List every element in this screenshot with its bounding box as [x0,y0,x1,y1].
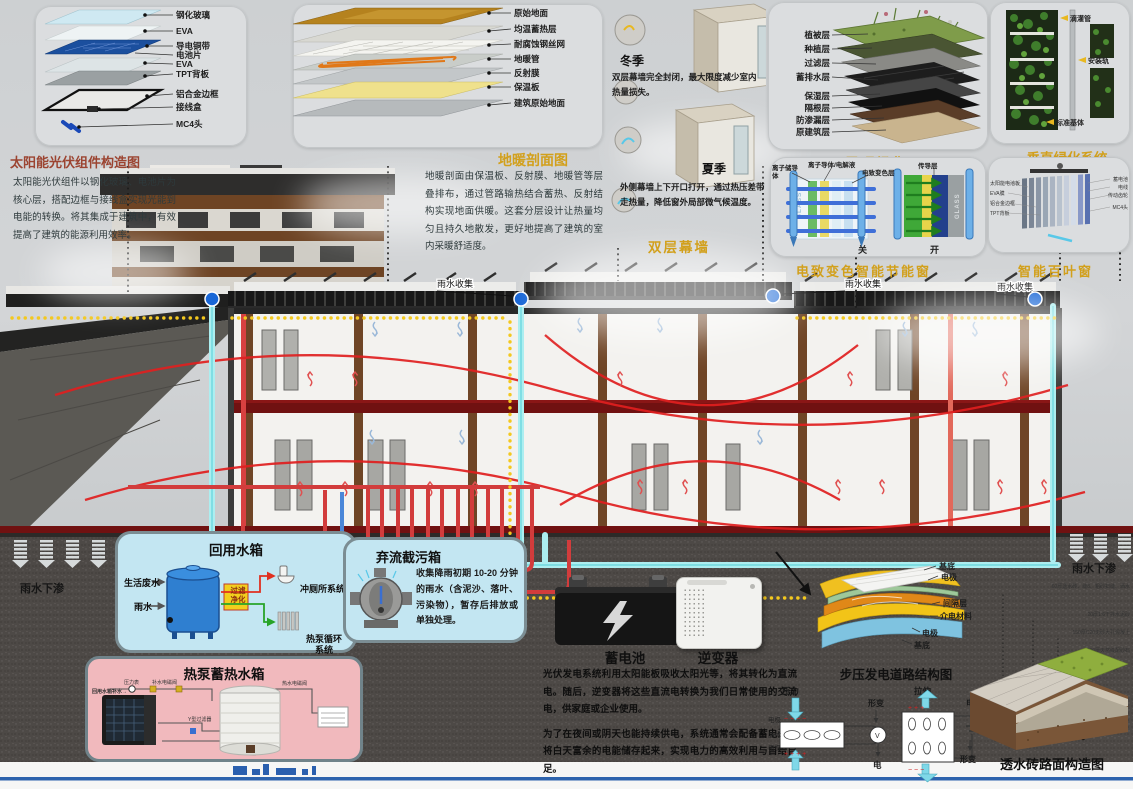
heating-layer-label: 反射膜 [514,68,540,78]
heatpump-label: 补水电磁阀 [152,679,177,686]
piezo-layer-label: 电极 [922,628,938,638]
pv-layer-label: 钢化玻璃 [176,10,211,20]
svg-text:+ + +: + + + [908,705,924,712]
pv-layer-label: TPT背板 [176,69,210,79]
smart-blinds-panel: 太阳能电池板 EVA膜 铝合金边框 TPT背板 蓄电池 电线 传动齿轮 MC4头 [988,157,1130,253]
rain-collect-label-left: 雨水收集 [437,278,473,289]
piezo-layer-label: 电极 [941,572,957,582]
diversion-desc: 收集降雨初期 10-20 分钟的雨水（含泥沙、落叶、污染物），暂存后排放或单独处… [416,566,518,629]
red-riser-pipe-right [948,314,953,526]
glass-label: GLASS [955,193,961,219]
crystal-label: 晶体 [768,730,782,739]
blinds-title: 智能百叶窗 [1018,261,1093,280]
red-riser-pipe-left [241,314,246,526]
reuse-input-1: 生活废水 [124,576,160,589]
svg-text:V: V [875,733,880,740]
winter-text: 双层幕墙完全封闭，最大限度减少室内热量损失。 [612,70,762,101]
roof-layer-label: 植被层 [803,30,830,40]
blinds-label: 太阳能电池板 [990,180,1020,187]
permeable-layer-label: 150厚C20无砂大孔混凝土 [1072,629,1130,636]
pv-layer-label: EVA [176,26,193,36]
roof-layer-label: 过滤层 [804,58,830,68]
permeable-title: 透水砖路面构造图 [1000,754,1133,773]
piezo-layer-label: 基底 [938,561,955,571]
infiltration-label-left: 雨水下渗 [20,581,65,595]
blinds-label: 传动齿轮 [1108,192,1128,199]
vgreen-label: 安装轨 [1088,56,1109,65]
vertical-greening-diagram: 滴灌管 安装轨 标准基体 [990,2,1130,144]
heatpump-label: 压力表 [124,679,139,686]
rain-collect-label-right: 雨水收集 [997,281,1033,292]
curtain-wall-illustrations [608,0,766,258]
roof-layer-label: 原建筑层 [796,127,831,137]
heating-layer-label: 地暖管 [514,54,540,64]
curtain-title: 双层幕墙 [648,236,710,256]
roof-layer-label: 种植层 [803,44,830,54]
pv-module-panel: 钢化玻璃 EVA 导电铜带 电池片 EVA TPT背板 铝合金边框 接线盒 MC… [35,6,247,146]
electricity-label: 电 [873,760,882,770]
pv-exploded-diagram: 钢化玻璃 EVA 导电铜带 电池片 EVA TPT背板 铝合金边框 接线盒 MC… [35,6,247,146]
vgreen-label: 标准基体 [1055,118,1085,127]
pv-layer-label: MC4头 [176,119,203,129]
pv-panel-desc: 太阳能光伏组件以钢化玻璃、电池片为核心层，搭配边框与接线盒实现光能到电能的转换。… [13,174,176,244]
piezo-exploded-diagram: 基底 电极 间隔层 介电材料 电极 基底 [812,552,980,664]
floor-heating-panel: 原始地面 均温蓄热层 耐腐蚀钢丝网 地暖管 反射膜 保温板 建筑原始地面 [293,4,603,148]
radiator-icon [278,612,299,630]
electrode-label: 电极 [768,715,782,724]
poster: 雨水收集 雨水收集 雨水收集 雨水下渗 雨水下渗 [0,0,1133,789]
reuse-tank-panel: 回用水箱 生活废水 雨水 过滤净化 冲厕所系统 热泵循环系统 [115,531,357,653]
piezo-principle-diagram: 压力 − − − − + + + + 电极 晶体 电极 V 形变 电 拉伸 + … [768,682,980,784]
roof-layer-label: 蓄排水层 [796,72,831,82]
permeable-layer-label: 60厚透水砖、缝8、粗砂扫缝、洒水 [1052,583,1130,590]
inverter-vents [683,588,707,638]
heating-layer-label: 耐腐蚀钢丝网 [514,39,565,49]
ec-label: 传导层 [918,160,938,170]
left-pitched-roof [0,306,228,530]
floor-heating-exploded-diagram: 原始地面 均温蓄热层 耐腐蚀钢丝网 地暖管 反射膜 保温板 建筑原始地面 [293,4,603,148]
blinds-label: TPT背板 [990,210,1009,217]
blinds-label: EVA膜 [990,190,1005,197]
ec-open-state: GLASS [894,169,973,239]
pv-system-text: 光伏发电系统利用太阳能板吸收太阳光等，将其转化为直流电。随后，逆变器将这些直流电… [543,666,797,785]
roof-layer-label: 防渗漏层 [796,115,831,125]
heating-layer-label: 原始地面 [514,8,549,18]
roof-greening-exploded-diagram: 植被层 种植层 过滤层 蓄排水层 保湿层 隔根层 防渗漏层 原建筑层 [768,2,988,150]
diversion-device [350,566,414,636]
reuse-input-2: 雨水 [134,600,152,613]
summer-text: 外侧幕墙上下开口打开，通过热压差带走热量，降低窗外局部微气候温度。 [620,180,766,211]
reuse-out-2: 热泵循环系统 [302,634,346,657]
pv-panel-title: 太阳能光伏组件构造图 [10,152,140,171]
svg-text:+ + + +: + + + + [784,751,806,758]
diversion-tank-panel: 弃流截污箱 收集降雨初期 10-20 分钟的雨水（含泥沙、落叶、污染物），暂存后… [343,537,527,643]
toilet-icon [278,566,294,583]
ec-closed-state: GLASS [786,171,876,247]
diversion-title: 弃流截污箱 [376,547,441,566]
heating-panel-title: 地暖剖面图 [498,150,568,170]
pv-system-paragraph-1: 光伏发电系统利用太阳能板吸收太阳光等，将其转化为直流电。随后，逆变器将这些直流电… [543,666,797,719]
permeable-pavement-diagram: 60厚透水砖、缝8、粗砂扫缝、洒水 20厚1:6干拌水泥砂 150厚C20无砂大… [958,572,1133,754]
pv-layer-label: 铝合金边框 [176,89,219,99]
permeable-layer-label: 20厚1:6干拌水泥砂 [1087,611,1130,618]
heating-layer-label: 建筑原始地面 [513,98,566,108]
smart-blinds-diagram: 太阳能电池板 EVA膜 铝合金边框 TPT背板 蓄电池 电线 传动齿轮 MC4头 [988,157,1130,253]
inverter-led [750,584,755,589]
roof-layer-label: 隔根层 [804,103,830,113]
blinds-label: 电线 [1118,184,1128,191]
roof-layer-label: 保湿层 [803,91,830,101]
ec-state-closed: 关 [858,244,867,255]
deform-label: 形变 [868,698,884,708]
pavement-block [970,648,1128,750]
heatpump-tank-panel: 热泵蓄热水箱 压力表 补水电磁阀 回用水箱补水→ Y型过滤器 热水电磁阀 [85,656,363,762]
deform-label: 形变 [960,754,976,764]
ec-state-open: 开 [930,245,939,255]
svg-text:− − −: − − − [908,767,924,774]
ec-label: 电致变色层 [862,167,895,177]
pv-system-paragraph-2: 为了在夜间或阴天也能持续供电，系统通常会配备蓄电池，将白天富余的电能储存起来，实… [543,726,797,779]
piezo-pressure-diagram: 压力 − − − − + + + + 电极 晶体 电极 V 形变 电 [768,686,886,770]
inverter-illustration [676,577,762,649]
roof-greening-panel: 植被层 种植层 过滤层 蓄排水层 保湿层 隔根层 防渗漏层 原建筑层 [768,2,988,150]
ec-window-title: 电致变色智能节能窗 [796,261,931,280]
pv-layer-label: EVA [176,59,193,69]
heating-panel-desc: 地暖剖面由保温板、反射膜、地暖管等层叠排布，通过管路输热结合蓄热、反射结构实现地… [425,168,603,256]
vgreen-label: 滴灌管 [1070,14,1091,23]
winter-label: 冬季 [620,52,644,69]
filter-box-label: 过滤净化 [230,587,246,604]
summer-label: 夏季 [702,160,726,177]
inverter-label: 逆变器 [676,647,760,667]
blinds-label: 蓄电池 [1113,176,1128,183]
blinds-label: MC4头 [1112,204,1128,211]
pv-layer-label: 接线盒 [176,102,202,112]
electrode-label: 电极 [768,743,782,752]
piezo-title: 步压发电道路结构图 [812,664,980,683]
inverter-handle [687,580,727,585]
heatpump-diagram: 压力表 补水电磁阀 回用水箱补水→ Y型过滤器 热水电磁阀 [92,679,356,757]
double-curtain-wall-section: 冬季 双层幕墙完全封闭，最大限度减少室内热量损失。 夏季 外侧幕墙上下开口打开，… [608,0,766,258]
heatpump-label: Y型过滤器 [188,716,211,723]
blinds-label: 铝合金边框 [990,200,1015,207]
heating-layer-label: 保温板 [513,82,540,92]
reuse-tank-title: 回用水箱 [118,539,354,559]
ec-label: 离子储导体 [772,165,802,182]
pressure-label: 压力 [782,686,799,696]
piezo-layer-label: 基底 [913,640,930,650]
svg-text:− − − −: − − − − [784,716,806,723]
electrochromic-window-panel: GLASS GLASS 关 开 离子储 [770,157,986,257]
ec-label: 离子导体/电解液 [808,159,855,169]
heating-layer-label: 均温蓄热层 [514,24,557,34]
vertical-greening-panel: 滴灌管 安装轨 标准基体 [990,2,1130,144]
reuse-out-1: 冲厕所系统 [300,582,345,595]
heatpump-label: 热水电磁阀 [282,680,307,687]
heatpump-label: 回用水箱补水→ [92,688,127,695]
